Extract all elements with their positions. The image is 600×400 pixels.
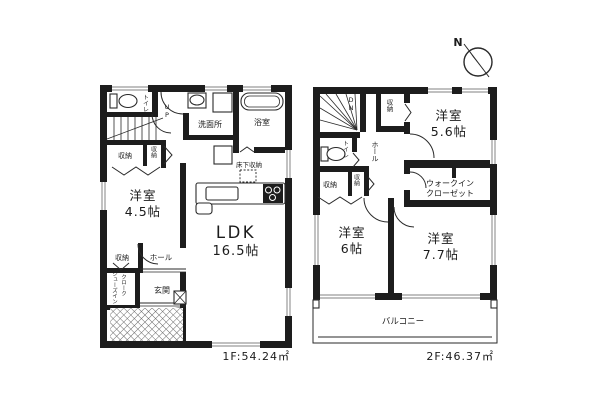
label-wic-1: ウォークイン	[426, 179, 474, 188]
label-toilet-1f: トイレ	[142, 94, 149, 112]
label-western-a-size-2f: 5.6帖	[431, 124, 467, 139]
label-bathroom: 浴室	[254, 117, 270, 127]
label-hall-1f: ホール	[150, 253, 173, 262]
shaft-box	[174, 291, 186, 304]
compass: N	[453, 36, 492, 77]
label-closet-b-2f: 収納	[323, 180, 337, 189]
label-shoes-closet-2: クローク	[120, 274, 127, 297]
label-western-c-2f: 洋室	[427, 231, 454, 246]
label-western-a-2f: 洋室	[435, 108, 462, 123]
toilet-fixture-1f	[110, 94, 137, 108]
label-underfloor-storage: 床下収納	[236, 160, 262, 169]
label-closet-a-1f: 収納	[118, 151, 132, 160]
floorplan-drawing: トイレ UP 収納 収納 洋室 4.5帖 収納 ホール シューズイン クローク …	[0, 0, 600, 400]
label-closet-b-1f: 収納	[150, 146, 157, 159]
kitchen-fixture	[196, 183, 285, 214]
label-hall-2f: ホール	[371, 141, 379, 162]
label-western-b-2f: 洋室	[338, 225, 365, 240]
label-toilet-2f: トイレ	[342, 140, 349, 158]
label-western-c-size-2f: 7.7帖	[423, 247, 459, 262]
label-closet-c-1f: 収納	[115, 253, 129, 262]
label-balcony: バルコニー	[382, 317, 424, 327]
label-western-room-1f: 洋室	[129, 188, 156, 203]
floor1-area-label: 1F:54.24㎡	[222, 350, 290, 363]
washbasin-fixture	[188, 93, 206, 108]
floor-2-plan: DN 収納 洋室 5.6帖 トイレ ホール 収納 収納 ウォークイン クローゼッ…	[313, 87, 497, 363]
stairs-1f	[107, 117, 163, 140]
floor2-area-label: 2F:46.37㎡	[426, 350, 494, 363]
bathtub-fixture	[241, 93, 283, 110]
label-washroom: 洗面所	[198, 119, 222, 129]
label-closet-top-2f: 収納	[385, 99, 393, 114]
label-closet-c-2f: 収納	[353, 174, 360, 187]
label-stairs-up: UP	[163, 103, 171, 119]
label-wic-2: クローゼット	[426, 188, 474, 198]
label-ldk-size: 16.5帖	[213, 244, 260, 259]
label-stairs-dn: DN	[347, 96, 355, 112]
label-ldk: LDK	[216, 223, 256, 242]
floor-1-plan: トイレ UP 収納 収納 洋室 4.5帖 収納 ホール シューズイン クローク …	[100, 85, 292, 363]
label-entrance: 玄関	[154, 285, 170, 295]
label-shoes-closet-1: シューズイン	[111, 271, 118, 304]
label-western-room-size-1f: 4.5帖	[125, 204, 161, 219]
floorplan-page: トイレ UP 収納 収納 洋室 4.5帖 収納 ホール シューズイン クローク …	[0, 0, 600, 400]
compass-north-label: N	[453, 36, 462, 49]
washing-machine-fixture	[213, 93, 232, 112]
label-western-b-size-2f: 6帖	[341, 241, 363, 256]
